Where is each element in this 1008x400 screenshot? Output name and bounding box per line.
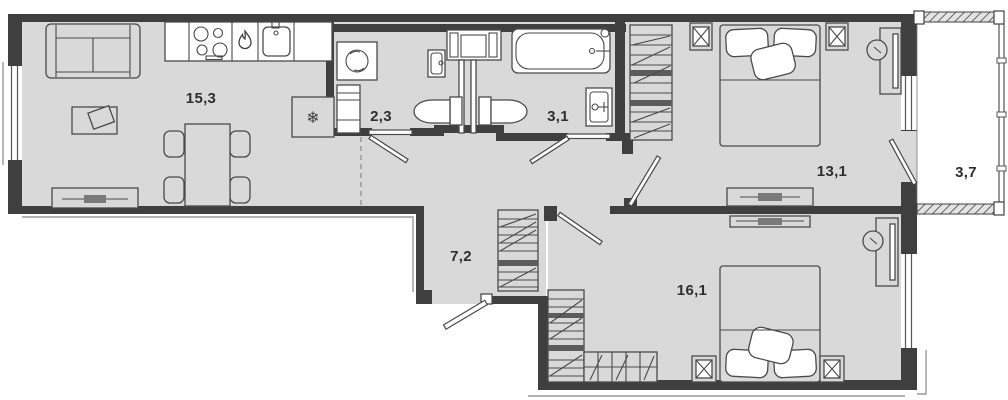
room-label-bathroom-large: 3,1 [547,108,569,125]
balcony-corner-post [994,11,1004,24]
nightstand-lamp-icon [826,23,848,50]
kitchen-counter [165,22,332,61]
floor-plan: ❄ [0,0,1008,400]
window-bedroom-2 [901,254,917,348]
balcony-corner-post [914,11,924,24]
tv-stand-icon [52,188,138,208]
washbasin-small-icon [428,50,445,77]
nightstand-lamp-icon [690,23,712,50]
door-threshold [566,134,610,139]
kitchen-sink-icon [263,22,290,56]
window-bedroom-1 [901,76,917,130]
bathtub-icon [512,29,610,73]
room-label-bedroom-1: 13,1 [817,163,847,180]
entrance-opening [432,290,481,304]
exterior-outline-right [917,350,926,394]
fridge-icon: ❄ [292,97,334,137]
door-threshold [369,130,412,135]
sofa-icon [46,24,140,78]
room-label-hallway: 7,2 [450,248,472,265]
room-label-bedroom-2: 16,1 [677,282,707,299]
bathroom-cabinet-icon [337,85,360,133]
wardrobe-hatched-bedroom2-left [548,290,584,382]
chair-icon [164,131,184,157]
room-label-living-kitchen: 15,3 [186,90,216,107]
bed-double-icon [720,266,820,382]
chair-icon [230,131,250,157]
room-label-bathroom-small: 2,3 [370,108,392,125]
snowflake-icon: ❄ [306,108,319,127]
chair-icon [164,177,184,203]
exterior-outline-lower-left [22,217,413,292]
riser-pipe [471,60,476,133]
dresser-tv-icon [727,188,813,206]
wardrobe-hatched-hallway [498,210,538,291]
room-label-balcony: 3,7 [955,164,977,181]
wardrobe-hatched-bedroom1 [630,25,672,140]
window-living-left [3,62,22,165]
tv-console-icon [730,216,810,227]
nightstand-lamp-icon [692,356,716,382]
bed-double-icon [720,25,820,146]
balcony-corner-post [994,202,1004,215]
balcony-structure [914,11,1006,215]
washbasin-icon [586,88,612,126]
nightstand-lamp-icon [820,356,844,382]
door-leaf-entrance [443,300,487,329]
wardrobe-hatched-bedroom2-bottom [584,352,657,382]
washing-machine-icon [337,42,377,80]
chair-icon [230,177,250,203]
coffee-table-icon [72,106,117,134]
